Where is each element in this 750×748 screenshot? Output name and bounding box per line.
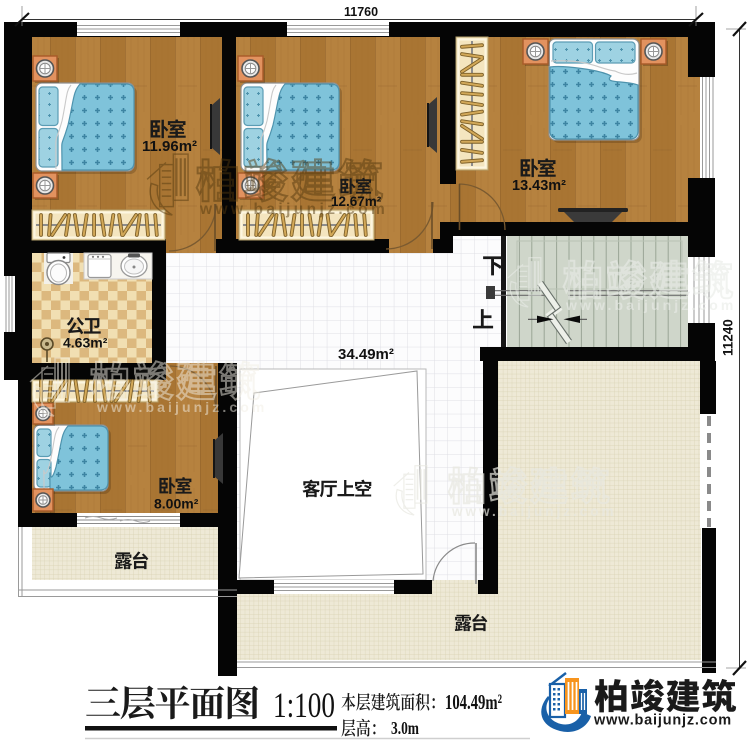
- svg-text:www.baijunjz.com: www.baijunjz.com: [593, 713, 732, 729]
- svg-text:www.baijunjz.com: www.baijunjz.com: [96, 399, 267, 415]
- svg-text:1:100: 1:100: [273, 685, 335, 725]
- svg-text:www.baijunjz.com: www.baijunjz.com: [451, 504, 617, 519]
- svg-text:11240: 11240: [721, 319, 736, 356]
- svg-text:4.63m²: 4.63m²: [63, 335, 108, 351]
- svg-text:34.49m²: 34.49m²: [338, 346, 394, 363]
- svg-text:13.43m²: 13.43m²: [512, 178, 566, 194]
- svg-text:11.96m²: 11.96m²: [142, 138, 197, 155]
- svg-text:12.67m²: 12.67m²: [331, 194, 382, 209]
- svg-text:3.0m: 3.0m: [391, 718, 419, 738]
- svg-text:8.00m²: 8.00m²: [154, 496, 199, 512]
- svg-text:www.baijunjz.com: www.baijunjz.com: [565, 297, 736, 313]
- svg-text:104.49m²: 104.49m²: [445, 690, 502, 714]
- svg-text:11760: 11760: [344, 5, 378, 19]
